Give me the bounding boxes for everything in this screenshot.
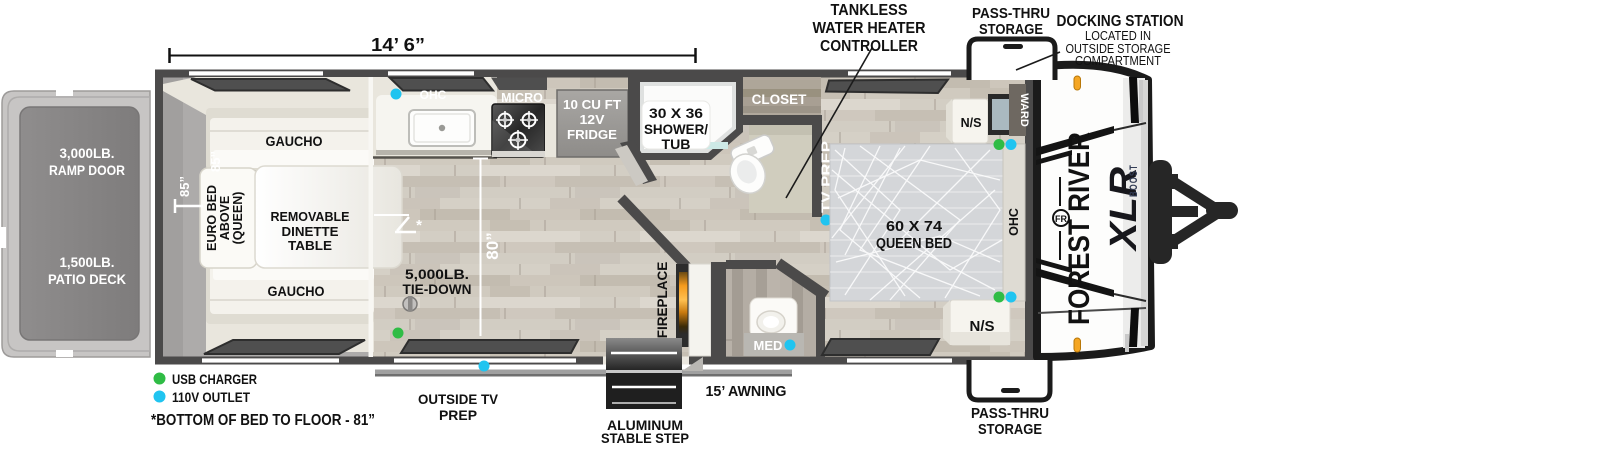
svg-text:FOREST RIVER: FOREST RIVER	[1063, 132, 1096, 325]
svg-text:OUTSIDE TV: OUTSIDE TV	[418, 391, 499, 407]
svg-text:WARD: WARD	[1018, 93, 1030, 127]
svg-text:CLOSET: CLOSET	[752, 92, 808, 107]
svg-text:TABLE: TABLE	[288, 238, 332, 253]
svg-text:LOCATED IN: LOCATED IN	[1085, 29, 1151, 43]
svg-text:CONTROLLER: CONTROLLER	[820, 38, 918, 55]
svg-text:5,000LB.: 5,000LB.	[405, 267, 469, 282]
svg-text:REMOVABLE: REMOVABLE	[271, 209, 350, 224]
svg-text:60 X 74: 60 X 74	[886, 219, 942, 235]
svg-text:PASS-THRU: PASS-THRU	[972, 5, 1050, 22]
svg-text:USB CHARGER: USB CHARGER	[172, 371, 257, 387]
svg-text:OHC: OHC	[420, 88, 447, 102]
svg-text:DOCKING STATION: DOCKING STATION	[1057, 13, 1184, 30]
svg-text:MED: MED	[754, 338, 783, 353]
svg-text:12V: 12V	[580, 112, 605, 127]
svg-text:RAMP DOOR: RAMP DOOR	[49, 163, 125, 178]
svg-text:PATIO DECK: PATIO DECK	[48, 272, 126, 287]
svg-text:ABOVE: ABOVE	[218, 196, 232, 240]
svg-text:TANKLESS: TANKLESS	[831, 2, 908, 19]
svg-text:TUB: TUB	[662, 136, 691, 152]
svg-text:QUEEN BED: QUEEN BED	[876, 236, 952, 252]
svg-text:1,500LB.: 1,500LB.	[60, 255, 115, 270]
svg-text:85”: 85”	[208, 151, 223, 172]
svg-text:STORAGE: STORAGE	[978, 421, 1042, 438]
svg-text:14’ 6”: 14’ 6”	[371, 35, 425, 55]
svg-text:FRIDGE: FRIDGE	[567, 127, 617, 142]
svg-text:PASS-THRU: PASS-THRU	[971, 405, 1049, 422]
svg-text:10 CU FT: 10 CU FT	[563, 97, 621, 112]
svg-text:N/S: N/S	[961, 116, 982, 130]
svg-text:15’ AWNING: 15’ AWNING	[706, 384, 787, 400]
svg-text:PREP: PREP	[439, 407, 477, 423]
svg-text:N/S: N/S	[969, 318, 994, 335]
svg-text:*BOTTOM OF BED TO FLOOR - 81”: *BOTTOM OF BED TO FLOOR - 81”	[151, 412, 375, 429]
svg-text:WATER HEATER: WATER HEATER	[813, 20, 926, 37]
svg-text:*: *	[416, 217, 422, 234]
svg-text:3,000LB.: 3,000LB.	[60, 146, 115, 161]
svg-text:GAUCHO: GAUCHO	[268, 284, 325, 299]
svg-text:COMPARTMENT: COMPARTMENT	[1075, 54, 1161, 68]
svg-text:TIE-DOWN: TIE-DOWN	[403, 282, 472, 297]
svg-text:STORAGE: STORAGE	[979, 21, 1043, 38]
svg-text:80”: 80”	[483, 232, 502, 259]
svg-text:STABLE STEP: STABLE STEP	[601, 430, 689, 444]
svg-text:110V OUTLET: 110V OUTLET	[172, 389, 250, 405]
svg-text:85”: 85”	[177, 176, 192, 197]
svg-text:OHC: OHC	[1007, 208, 1021, 236]
svg-text:FIREPLACE: FIREPLACE	[655, 262, 670, 339]
svg-text:GAUCHO: GAUCHO	[266, 134, 323, 149]
svg-text:MICRO: MICRO	[501, 91, 543, 105]
svg-text:BOOST: BOOST	[1128, 164, 1140, 197]
svg-text:DINETTE: DINETTE	[282, 224, 339, 239]
svg-text:SHOWER/: SHOWER/	[644, 121, 708, 137]
svg-text:EURO BED: EURO BED	[205, 185, 219, 251]
svg-text:30 X 36: 30 X 36	[649, 105, 703, 121]
svg-text:(QUEEN): (QUEEN)	[231, 192, 245, 245]
